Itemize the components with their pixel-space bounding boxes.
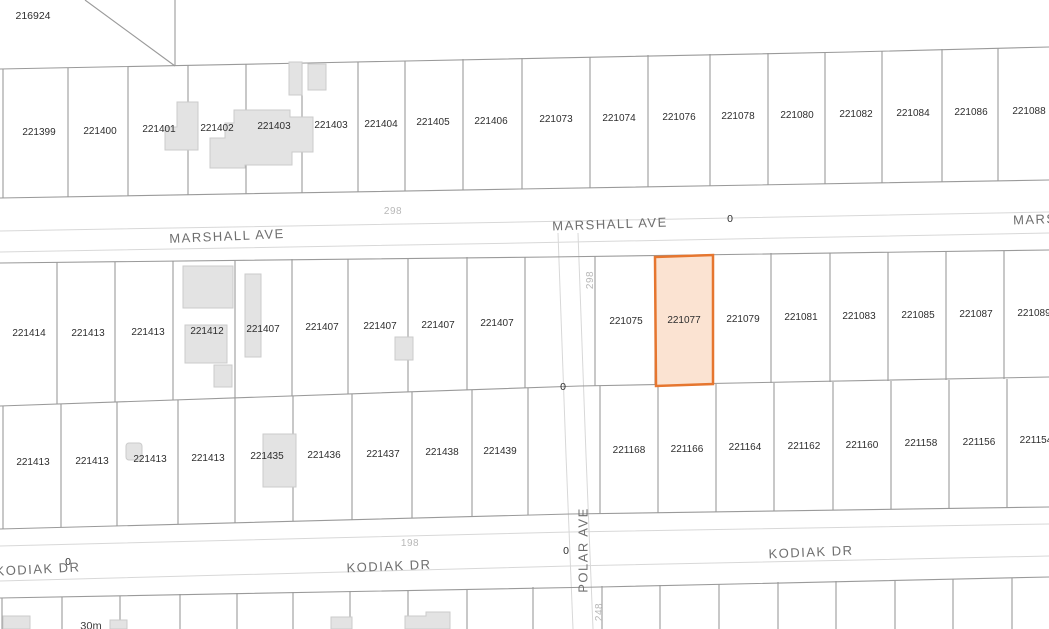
parcel-boundaries xyxy=(0,0,1049,629)
selected-parcel-highlight[interactable] xyxy=(655,255,713,386)
map-canvas[interactable]: 2169242213992214002214012214022214032214… xyxy=(0,0,1049,629)
parcel-map-svg xyxy=(0,0,1049,629)
